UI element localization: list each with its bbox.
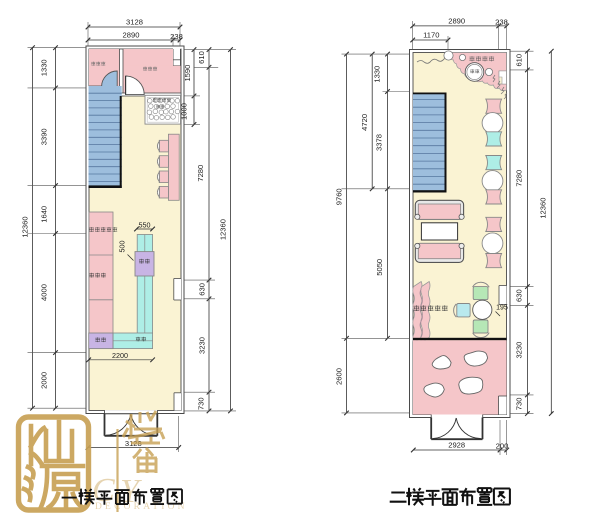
svg-text:7280: 7280 (196, 165, 205, 182)
svg-text:7280: 7280 (515, 170, 524, 187)
svg-text:238: 238 (495, 18, 508, 27)
svg-text:610: 610 (197, 51, 206, 64)
svg-text:3378: 3378 (375, 134, 384, 151)
svg-text:2600: 2600 (335, 368, 344, 385)
svg-text:2000: 2000 (40, 372, 49, 389)
svg-text:2200: 2200 (112, 351, 128, 360)
svg-text:550: 550 (139, 220, 151, 229)
svg-text:2928: 2928 (448, 441, 465, 450)
svg-text:1170: 1170 (423, 31, 439, 40)
svg-text:12360: 12360 (538, 198, 547, 219)
svg-text:730: 730 (197, 397, 206, 410)
svg-text:12360: 12360 (218, 219, 227, 240)
svg-text:2890: 2890 (448, 17, 465, 26)
svg-text:5050: 5050 (375, 259, 384, 276)
svg-text:200: 200 (496, 442, 509, 451)
svg-text:1590: 1590 (183, 65, 192, 82)
svg-text:630: 630 (198, 283, 207, 296)
svg-text:1000: 1000 (180, 103, 189, 120)
svg-text:9760: 9760 (334, 188, 343, 205)
svg-text:12360: 12360 (21, 216, 30, 237)
svg-text:630: 630 (515, 289, 524, 302)
svg-text:3230: 3230 (515, 342, 524, 359)
svg-text:1640: 1640 (40, 206, 49, 223)
svg-text:4000: 4000 (40, 284, 49, 301)
svg-text:1330: 1330 (373, 66, 382, 83)
svg-text:500: 500 (118, 241, 127, 253)
svg-text:730: 730 (515, 398, 524, 411)
svg-text:610: 610 (515, 54, 524, 67)
svg-text:1330: 1330 (40, 59, 49, 76)
svg-text:3128: 3128 (126, 18, 143, 27)
svg-text:2890: 2890 (123, 31, 140, 40)
svg-text:238: 238 (170, 32, 183, 41)
svg-text:195: 195 (496, 305, 508, 312)
svg-text:3230: 3230 (198, 337, 207, 354)
svg-text:3390: 3390 (40, 128, 49, 145)
svg-text:4720: 4720 (360, 114, 369, 131)
